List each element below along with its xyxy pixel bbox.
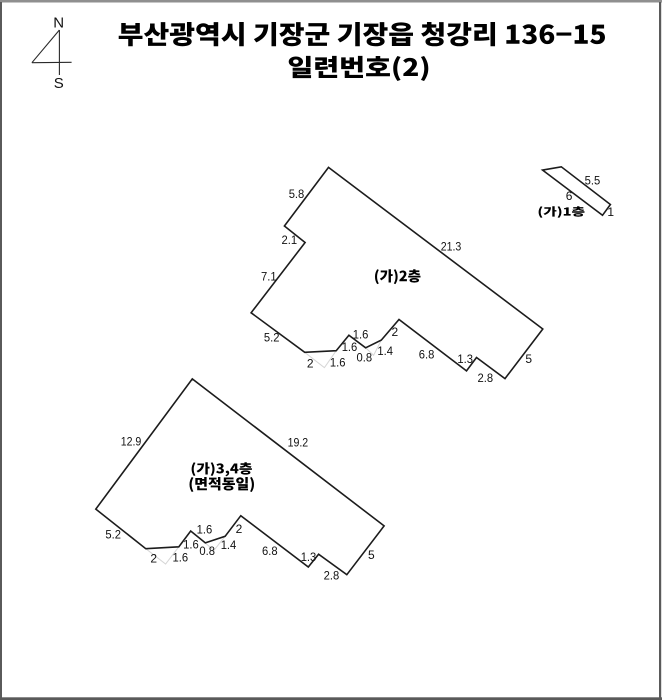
svg-text:1.6: 1.6 bbox=[173, 551, 189, 565]
svg-text:1: 1 bbox=[607, 205, 614, 219]
svg-text:1.6: 1.6 bbox=[353, 328, 369, 342]
svg-text:19.2: 19.2 bbox=[288, 436, 309, 450]
svg-text:2.1: 2.1 bbox=[282, 233, 298, 247]
svg-text:1.6: 1.6 bbox=[183, 538, 199, 552]
svg-text:N: N bbox=[53, 14, 64, 31]
svg-text:0.8: 0.8 bbox=[357, 351, 373, 365]
svg-text:5.5: 5.5 bbox=[585, 174, 601, 188]
svg-text:6.8: 6.8 bbox=[419, 348, 435, 362]
svg-text:2: 2 bbox=[236, 522, 243, 536]
svg-text:5.2: 5.2 bbox=[105, 528, 121, 542]
svg-text:5.8: 5.8 bbox=[289, 187, 305, 201]
svg-text:2: 2 bbox=[307, 357, 314, 371]
svg-text:2.8: 2.8 bbox=[478, 371, 494, 385]
svg-text:2: 2 bbox=[391, 325, 398, 339]
svg-text:S: S bbox=[54, 75, 64, 92]
svg-text:5.2: 5.2 bbox=[264, 331, 280, 345]
svg-text:1.6: 1.6 bbox=[330, 356, 346, 370]
svg-text:6.8: 6.8 bbox=[262, 544, 278, 558]
svg-text:12.9: 12.9 bbox=[121, 435, 142, 449]
svg-text:21.3: 21.3 bbox=[441, 240, 462, 254]
svg-text:0.8: 0.8 bbox=[199, 544, 215, 558]
svg-text:2: 2 bbox=[150, 552, 157, 566]
svg-text:5: 5 bbox=[368, 548, 375, 562]
svg-text:2.8: 2.8 bbox=[324, 569, 340, 583]
svg-text:1.3: 1.3 bbox=[457, 352, 473, 366]
svg-text:6: 6 bbox=[566, 189, 573, 203]
svg-text:1.3: 1.3 bbox=[301, 550, 317, 564]
svg-text:7.1: 7.1 bbox=[261, 270, 277, 284]
svg-text:1.6: 1.6 bbox=[342, 340, 358, 354]
svg-text:1.4: 1.4 bbox=[221, 538, 237, 552]
svg-text:5: 5 bbox=[525, 352, 532, 366]
svg-text:1.6: 1.6 bbox=[197, 522, 213, 536]
svg-text:1.4: 1.4 bbox=[377, 344, 393, 358]
